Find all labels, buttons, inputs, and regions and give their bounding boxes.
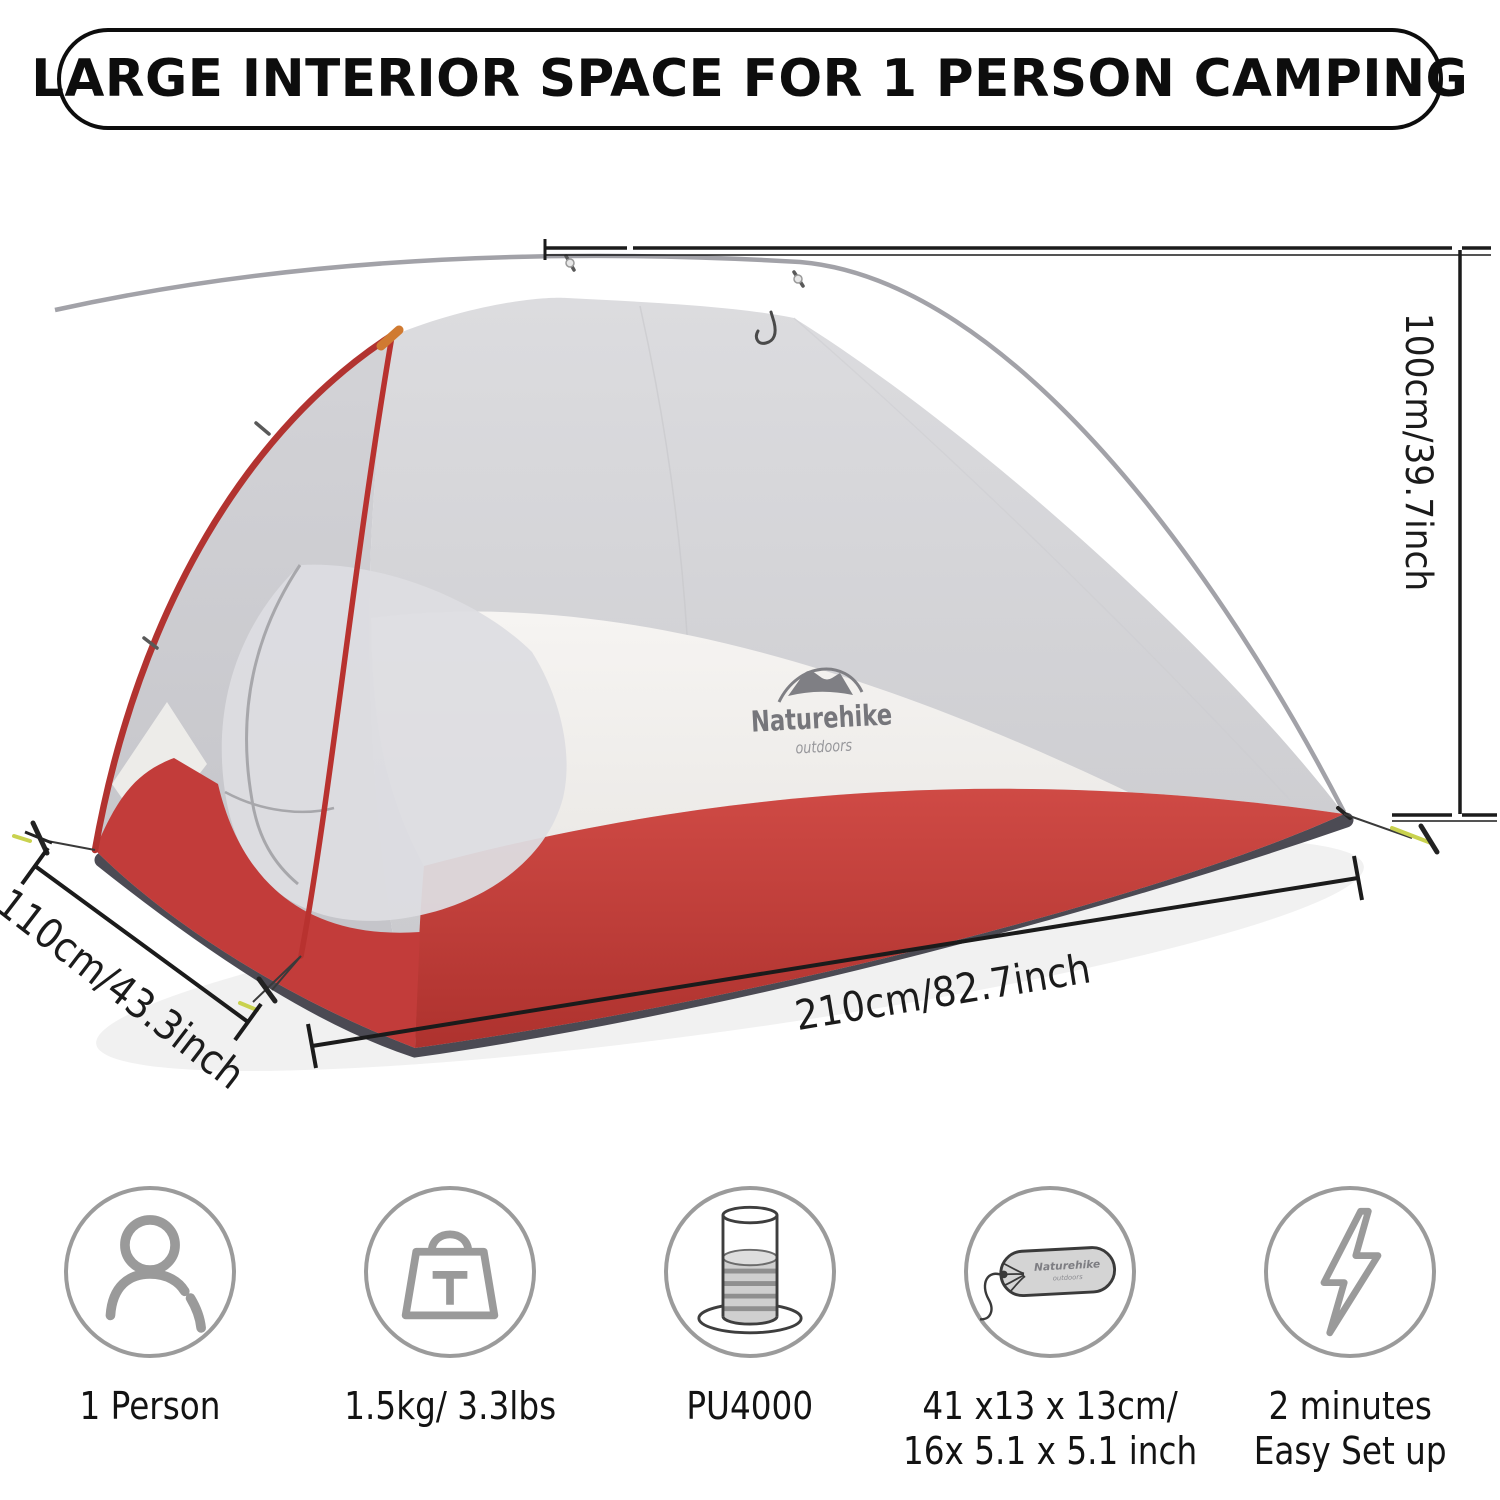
feature-circle — [364, 1186, 536, 1358]
feature-row: 1 Person 1.5kg/ 3.3lbs — [0, 1186, 1500, 1474]
feature-circle — [64, 1186, 236, 1358]
brand-tagline: outdoors — [795, 737, 853, 758]
feature-capacity: 1 Person — [0, 1186, 300, 1474]
svg-text:outdoors: outdoors — [1053, 1273, 1084, 1283]
feature-label: 1.5kg/ 3.3lbs — [344, 1384, 556, 1429]
packed-size-icon: Naturehike outdoors — [968, 1190, 1132, 1354]
height-dimension-label: 100cm/39.7inch — [1397, 313, 1439, 591]
feature-circle — [664, 1186, 836, 1358]
feature-label: 41 x13 x 13cm/16x 5.1 x 5.1 inch — [903, 1384, 1197, 1474]
feature-circle: Naturehike outdoors — [964, 1186, 1136, 1358]
setup-time-icon — [1268, 1190, 1432, 1354]
person-icon — [68, 1190, 232, 1354]
feature-packed-size: Naturehike outdoors 41 x13 x 13cm/16x 5.… — [900, 1186, 1200, 1474]
weight-icon — [368, 1190, 532, 1354]
feature-circle — [1264, 1186, 1436, 1358]
waterproof-rating-icon — [668, 1190, 832, 1354]
feature-waterproof: PU4000 — [600, 1186, 900, 1474]
feature-label: 2 minutesEasy Set up — [1254, 1384, 1447, 1474]
feature-label: 1 Person — [79, 1384, 220, 1429]
product-infographic: { "banner": { "title": "LARGE INTERIOR S… — [0, 0, 1500, 1500]
feature-weight: 1.5kg/ 3.3lbs — [300, 1186, 600, 1474]
feature-label: PU4000 — [687, 1384, 814, 1429]
feature-setup-time: 2 minutesEasy Set up — [1200, 1186, 1500, 1474]
